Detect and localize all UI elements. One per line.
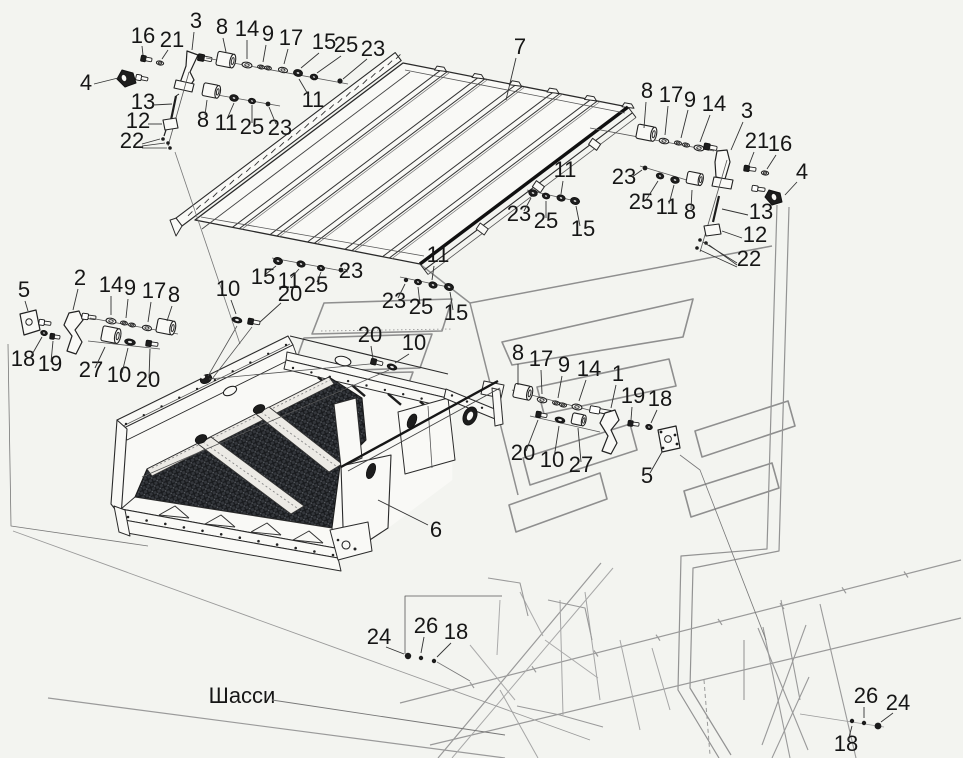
svg-text:27: 27 bbox=[79, 357, 103, 382]
svg-text:18: 18 bbox=[444, 619, 468, 644]
svg-text:8: 8 bbox=[197, 107, 209, 132]
svg-text:25: 25 bbox=[304, 272, 328, 297]
svg-text:7: 7 bbox=[514, 34, 526, 59]
svg-text:17: 17 bbox=[529, 346, 553, 371]
svg-text:11: 11 bbox=[427, 242, 450, 267]
svg-text:15: 15 bbox=[444, 300, 468, 325]
svg-text:17: 17 bbox=[279, 25, 303, 50]
svg-text:15: 15 bbox=[571, 216, 595, 241]
svg-text:13: 13 bbox=[749, 199, 773, 224]
svg-text:12: 12 bbox=[743, 222, 767, 247]
svg-text:20: 20 bbox=[358, 322, 382, 347]
svg-text:21: 21 bbox=[160, 27, 184, 52]
svg-text:16: 16 bbox=[131, 23, 155, 48]
svg-text:3: 3 bbox=[741, 98, 753, 123]
svg-text:15: 15 bbox=[251, 264, 275, 289]
svg-text:10: 10 bbox=[216, 276, 240, 301]
svg-text:11: 11 bbox=[302, 87, 325, 112]
svg-text:8: 8 bbox=[168, 282, 180, 307]
svg-text:18: 18 bbox=[834, 731, 858, 756]
svg-text:8: 8 bbox=[684, 199, 696, 224]
svg-text:25: 25 bbox=[409, 294, 433, 319]
svg-text:15: 15 bbox=[312, 29, 336, 54]
svg-text:23: 23 bbox=[339, 258, 363, 283]
svg-text:10: 10 bbox=[402, 330, 426, 355]
svg-text:19: 19 bbox=[38, 351, 62, 376]
svg-text:3: 3 bbox=[190, 8, 202, 33]
svg-text:19: 19 bbox=[621, 383, 645, 408]
svg-text:11: 11 bbox=[656, 194, 679, 219]
svg-text:11: 11 bbox=[554, 157, 577, 182]
svg-text:9: 9 bbox=[262, 21, 274, 46]
svg-text:9: 9 bbox=[558, 352, 570, 377]
svg-text:18: 18 bbox=[648, 386, 672, 411]
svg-text:23: 23 bbox=[268, 115, 292, 140]
svg-text:22: 22 bbox=[120, 128, 144, 153]
svg-text:24: 24 bbox=[886, 690, 910, 715]
svg-text:27: 27 bbox=[569, 452, 593, 477]
svg-text:11: 11 bbox=[215, 110, 238, 135]
svg-text:2: 2 bbox=[74, 265, 86, 290]
svg-text:8: 8 bbox=[641, 78, 653, 103]
svg-text:20: 20 bbox=[511, 440, 535, 465]
svg-text:17: 17 bbox=[142, 278, 166, 303]
svg-text:Шасси: Шасси bbox=[209, 683, 276, 708]
svg-text:25: 25 bbox=[334, 32, 358, 57]
svg-text:5: 5 bbox=[18, 277, 30, 302]
svg-text:9: 9 bbox=[684, 87, 696, 112]
svg-text:14: 14 bbox=[99, 272, 123, 297]
svg-text:14: 14 bbox=[577, 356, 601, 381]
svg-text:21: 21 bbox=[745, 128, 769, 153]
svg-text:6: 6 bbox=[430, 517, 442, 542]
svg-text:26: 26 bbox=[414, 613, 438, 638]
svg-text:8: 8 bbox=[512, 340, 524, 365]
svg-text:8: 8 bbox=[216, 14, 228, 39]
svg-text:10: 10 bbox=[107, 362, 131, 387]
svg-text:4: 4 bbox=[796, 159, 808, 184]
svg-text:20: 20 bbox=[136, 367, 160, 392]
svg-text:22: 22 bbox=[737, 246, 761, 271]
svg-text:26: 26 bbox=[854, 683, 878, 708]
svg-text:20: 20 bbox=[278, 281, 302, 306]
svg-text:25: 25 bbox=[629, 189, 653, 214]
svg-text:14: 14 bbox=[235, 16, 259, 41]
svg-text:23: 23 bbox=[361, 36, 385, 61]
svg-text:17: 17 bbox=[659, 82, 683, 107]
svg-text:18: 18 bbox=[11, 346, 35, 371]
svg-text:10: 10 bbox=[540, 447, 564, 472]
svg-text:16: 16 bbox=[768, 131, 792, 156]
svg-text:9: 9 bbox=[124, 275, 136, 300]
svg-text:14: 14 bbox=[702, 91, 726, 116]
svg-text:5: 5 bbox=[641, 463, 653, 488]
svg-text:23: 23 bbox=[382, 288, 406, 313]
svg-text:24: 24 bbox=[367, 624, 391, 649]
svg-text:4: 4 bbox=[80, 70, 92, 95]
